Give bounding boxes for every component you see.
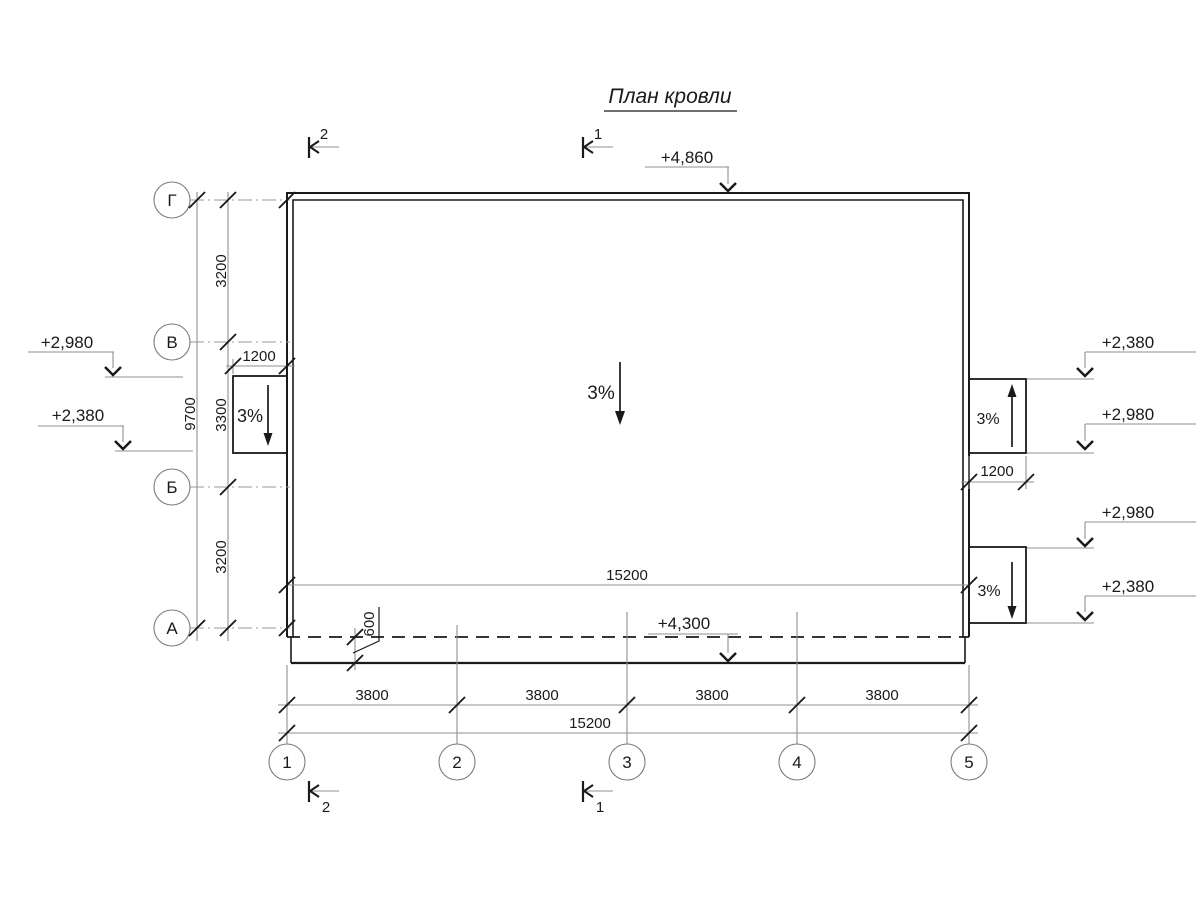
section-mark-top-2: 2	[309, 126, 339, 158]
elevation-top-value: +4,860	[661, 148, 713, 167]
axis-label-v: В	[166, 333, 177, 352]
dim-left-seg-3: 3200	[213, 540, 230, 573]
left-canopy-slope-label: 3%	[237, 406, 263, 426]
axis-label-5: 5	[964, 753, 973, 772]
down-arrow-icon	[720, 183, 736, 191]
right-upper-box: 3%	[969, 379, 1026, 453]
section-top-1-label: 1	[594, 126, 602, 143]
elevation-left-1-value: +2,980	[41, 333, 93, 352]
dim-bottom-overall: 15200	[569, 715, 611, 732]
axis-label-1: 1	[282, 753, 291, 772]
axis-label-a: А	[166, 619, 178, 638]
right-lower-box: 3%	[969, 547, 1026, 623]
dim-bottom-seg-3: 3800	[695, 687, 728, 704]
dim-left-seg-2: 3300	[213, 398, 230, 431]
axis-label-b: Б	[166, 478, 177, 497]
down-arrow-icon	[1077, 441, 1093, 449]
section-mark-bottom-2: 2	[309, 781, 339, 816]
down-arrow-icon	[1077, 612, 1093, 620]
canopy-width-dimension: 1200	[225, 348, 295, 374]
dim-left-seg-1: 3200	[213, 254, 230, 287]
drawing-canvas: План кровли 3% 3% 3% 3%	[0, 0, 1200, 900]
elevation-left-2-value: +2,380	[52, 406, 104, 425]
axis-label-2: 2	[452, 753, 461, 772]
axis-label-g: Г	[167, 191, 176, 210]
bottom-dimension-chains: 3800 3800 3800 3800 15200	[278, 612, 978, 744]
elevation-top: +4,860	[645, 148, 736, 191]
section-bottom-1-label: 1	[596, 799, 604, 816]
column-axes: 1 2 3 4 5	[269, 744, 987, 780]
dim-bottom-seg-4: 3800	[865, 687, 898, 704]
right-box-width-dimension: 1200	[961, 456, 1034, 490]
elevation-right-2-value: +2,980	[1102, 405, 1154, 424]
dim-canopy-width: 1200	[242, 348, 275, 365]
main-slope: 3%	[587, 362, 625, 425]
elevation-right-4: +2,380	[1027, 577, 1196, 623]
axis-label-3: 3	[622, 753, 631, 772]
elevation-right-2: +2,980	[1027, 405, 1196, 453]
down-arrow-icon	[720, 653, 736, 661]
section-top-2-label: 2	[320, 126, 328, 143]
down-arrow-icon	[105, 367, 121, 375]
elevation-left-2: +2,380	[38, 406, 193, 451]
main-slope-label: 3%	[587, 383, 615, 404]
elevation-right-3-value: +2,980	[1102, 503, 1154, 522]
dim-left-overall: 9700	[182, 397, 199, 430]
right-upper-slope-label: 3%	[976, 411, 999, 428]
left-canopy: 3%	[233, 376, 287, 453]
roof-plan-drawing: План кровли 3% 3% 3% 3%	[0, 0, 1200, 900]
roof-width-dimension: 15200	[279, 567, 977, 593]
down-arrow-icon	[1077, 538, 1093, 546]
elevation-right-4-value: +2,380	[1102, 577, 1154, 596]
down-arrow-icon	[115, 441, 131, 449]
roof-outline	[287, 193, 969, 663]
section-mark-top-1: 1	[583, 126, 613, 158]
section-mark-bottom-1: 1	[583, 781, 613, 816]
axis-label-4: 4	[792, 753, 801, 772]
section-bottom-2-label: 2	[322, 799, 330, 816]
down-arrow-icon	[1077, 368, 1093, 376]
drawing-title: План кровли	[608, 85, 732, 108]
elevation-right-3: +2,980	[1027, 503, 1196, 548]
dim-roof-width: 15200	[606, 567, 648, 584]
elevation-eaves-value: +4,300	[658, 614, 710, 633]
overhang-dimension: 600	[347, 607, 379, 671]
elevation-right-1: +2,380	[1027, 333, 1196, 379]
dim-right-box-width: 1200	[980, 463, 1013, 480]
right-lower-slope-label: 3%	[977, 583, 1000, 600]
elevation-right-1-value: +2,380	[1102, 333, 1154, 352]
dim-overhang: 600	[361, 611, 378, 636]
dim-bottom-seg-2: 3800	[525, 687, 558, 704]
dim-bottom-seg-1: 3800	[355, 687, 388, 704]
